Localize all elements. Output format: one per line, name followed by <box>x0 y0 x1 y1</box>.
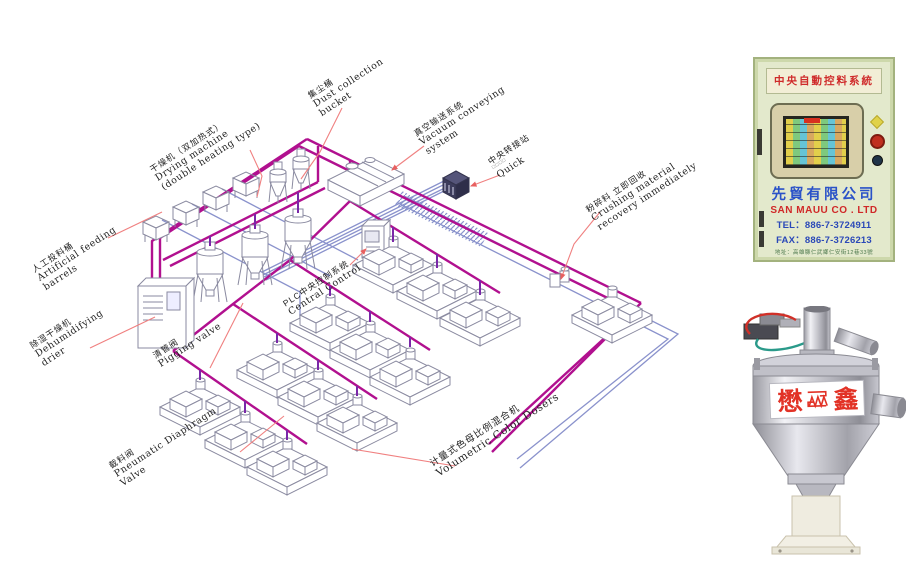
hopper-loader-photo: 懋 鑫 <box>716 306 906 556</box>
pedestal-base <box>772 496 860 554</box>
feeding-barrel <box>143 216 169 242</box>
company-address: 地址：高雄縣仁武鄉仁安街12巷33號 <box>755 248 893 256</box>
hopper-body <box>753 354 879 498</box>
indicator-lamp <box>870 115 884 129</box>
feeding-barrel <box>173 201 199 227</box>
inlet-pipe <box>800 306 880 356</box>
control-cabinet-photo: 中央自動控料系統 先貿有限公司 SAN MAUU CO . LTD TEL：88… <box>753 57 895 262</box>
feeding-barrel <box>233 172 259 198</box>
brand-char-left: 懋 <box>777 387 803 416</box>
cabinet-hmi-panel <box>770 103 864 179</box>
cabinet-vent <box>757 129 762 155</box>
dust-cyclone <box>269 162 287 203</box>
company-name-zh: 先貿有限公司 <box>755 183 893 204</box>
brand-char-right: 鑫 <box>833 385 859 415</box>
page: 人工投料桶 Artificial feeding barrels 干燥机（双加热… <box>0 0 912 562</box>
power-button <box>872 155 883 166</box>
outlet-stub <box>871 394 906 419</box>
company-tel: TEL：886-7-3724911 <box>755 217 893 231</box>
company-name-en: SAN MAUU CO . LTD <box>755 205 893 216</box>
stop-button <box>870 134 885 149</box>
molding-machine <box>572 286 652 343</box>
touch-screen <box>783 116 849 168</box>
cabinet-title: 中央自動控料系統 <box>766 68 882 94</box>
brand-label: 懋 鑫 <box>769 380 864 418</box>
drying-hopper <box>193 242 227 302</box>
central-transfer-station <box>443 171 469 199</box>
company-fax: FAX：886-7-3726213 <box>755 232 893 246</box>
